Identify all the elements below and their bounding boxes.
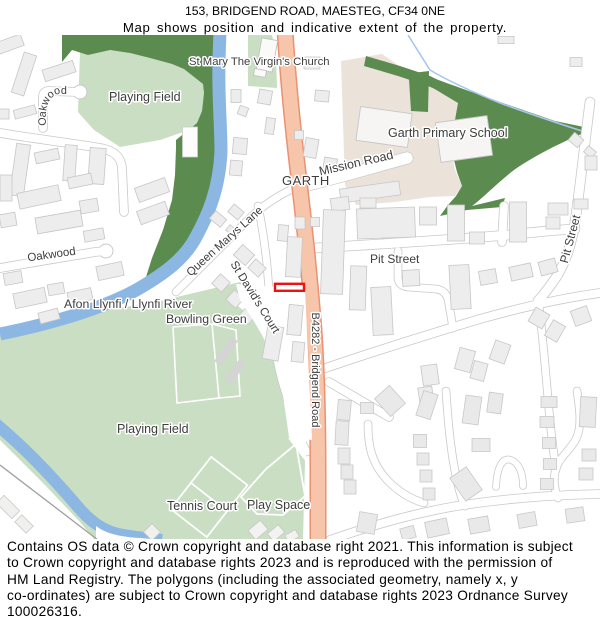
svg-text:Playing Field: Playing Field (117, 422, 189, 436)
svg-text:St Mary The Virgin's Church: St Mary The Virgin's Church (189, 56, 330, 68)
svg-text:Garth Primary School: Garth Primary School (388, 126, 507, 140)
svg-text:Afon Llynfi / Llynfi River: Afon Llynfi / Llynfi River (64, 297, 193, 311)
svg-text:Pit Street: Pit Street (370, 252, 420, 266)
svg-text:Playing Field: Playing Field (109, 90, 181, 104)
svg-text:Play Space: Play Space (247, 498, 310, 512)
svg-text:Tennis Court: Tennis Court (167, 499, 238, 513)
svg-text:B4282 - Bridgend Road: B4282 - Bridgend Road (309, 313, 321, 428)
svg-text:Bowling Green: Bowling Green (166, 312, 247, 326)
